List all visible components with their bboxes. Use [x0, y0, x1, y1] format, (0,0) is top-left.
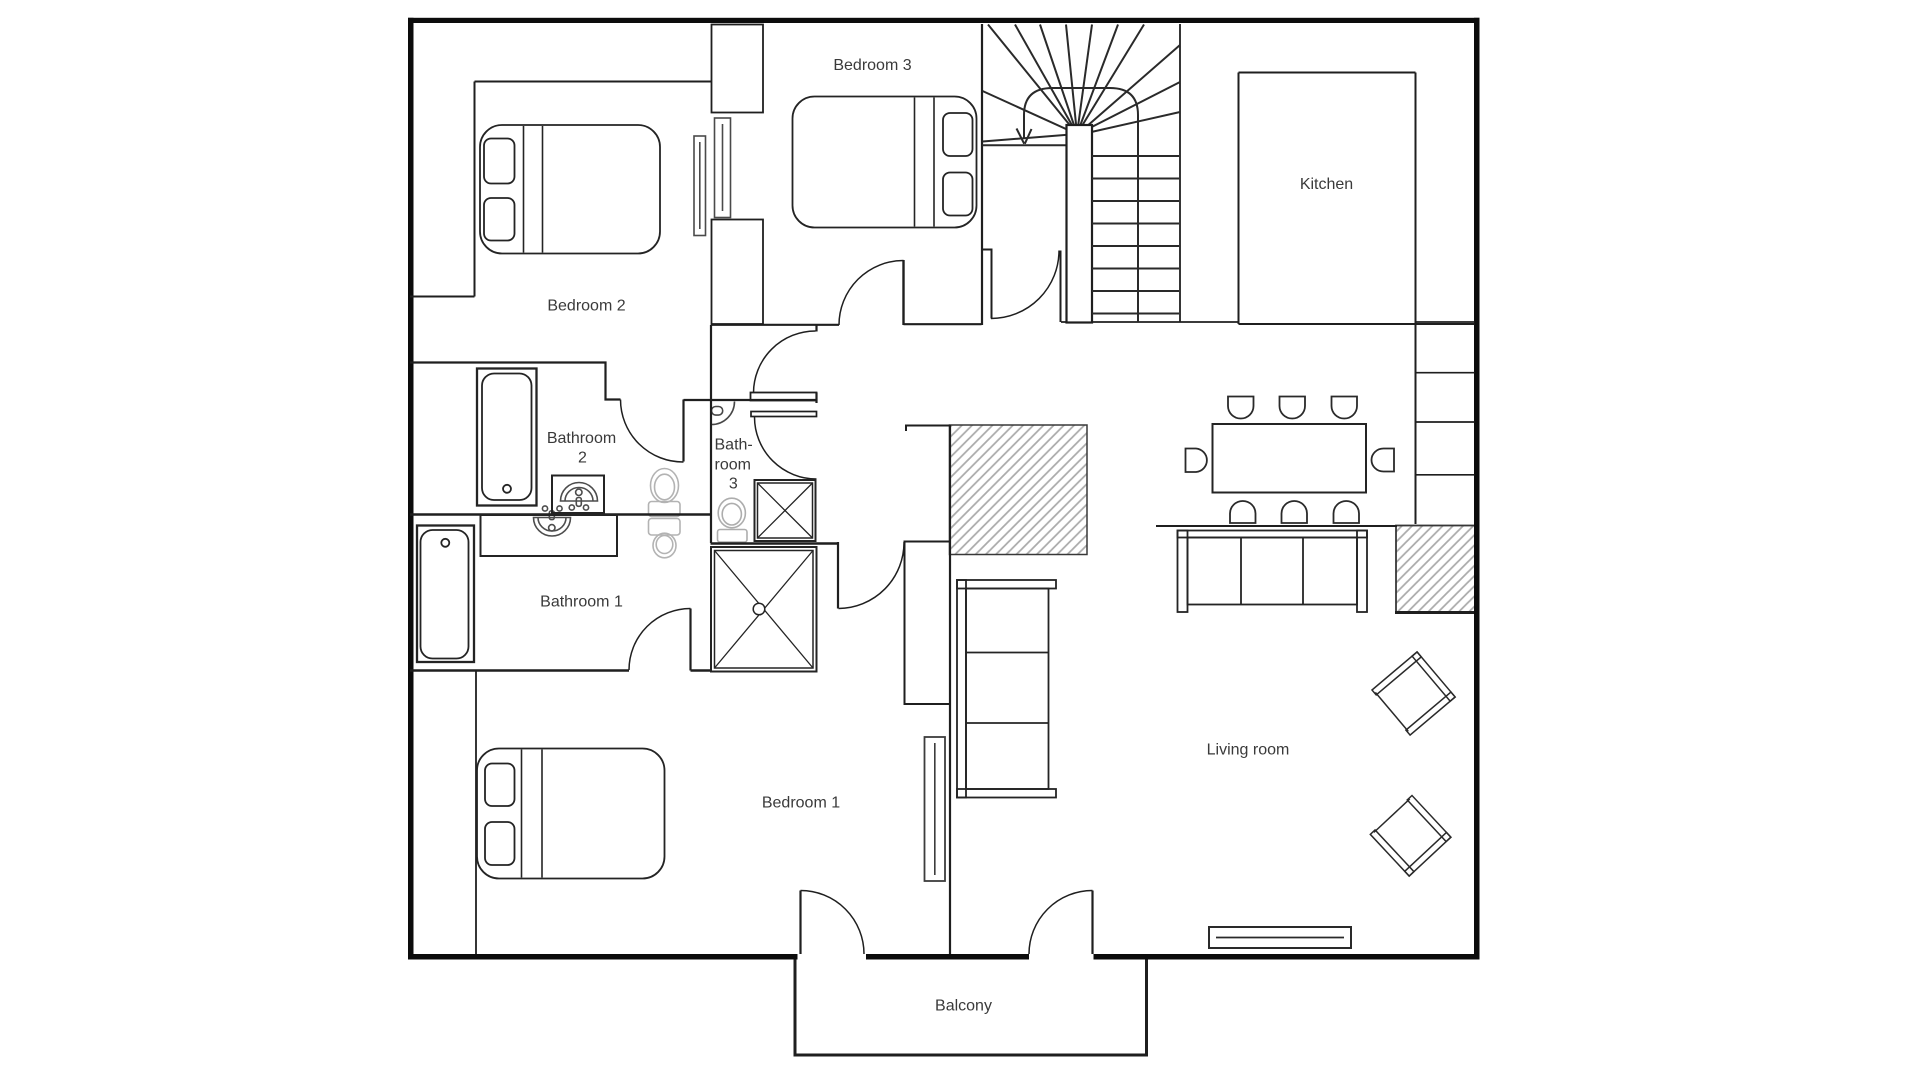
svg-text:2: 2 — [578, 450, 587, 467]
svg-text:3: 3 — [729, 476, 738, 493]
svg-text:Bath-: Bath- — [715, 437, 753, 454]
svg-text:Bedroom 3: Bedroom 3 — [833, 57, 911, 74]
svg-text:Bedroom 1: Bedroom 1 — [762, 795, 840, 812]
svg-text:Bathroom: Bathroom — [547, 430, 616, 447]
svg-text:Bathroom 1: Bathroom 1 — [540, 594, 623, 611]
svg-text:Kitchen: Kitchen — [1300, 176, 1353, 193]
svg-text:Living room: Living room — [1207, 742, 1290, 759]
svg-text:Balcony: Balcony — [935, 998, 992, 1015]
svg-text:Bedroom 2: Bedroom 2 — [547, 298, 625, 315]
svg-text:room: room — [715, 456, 751, 473]
